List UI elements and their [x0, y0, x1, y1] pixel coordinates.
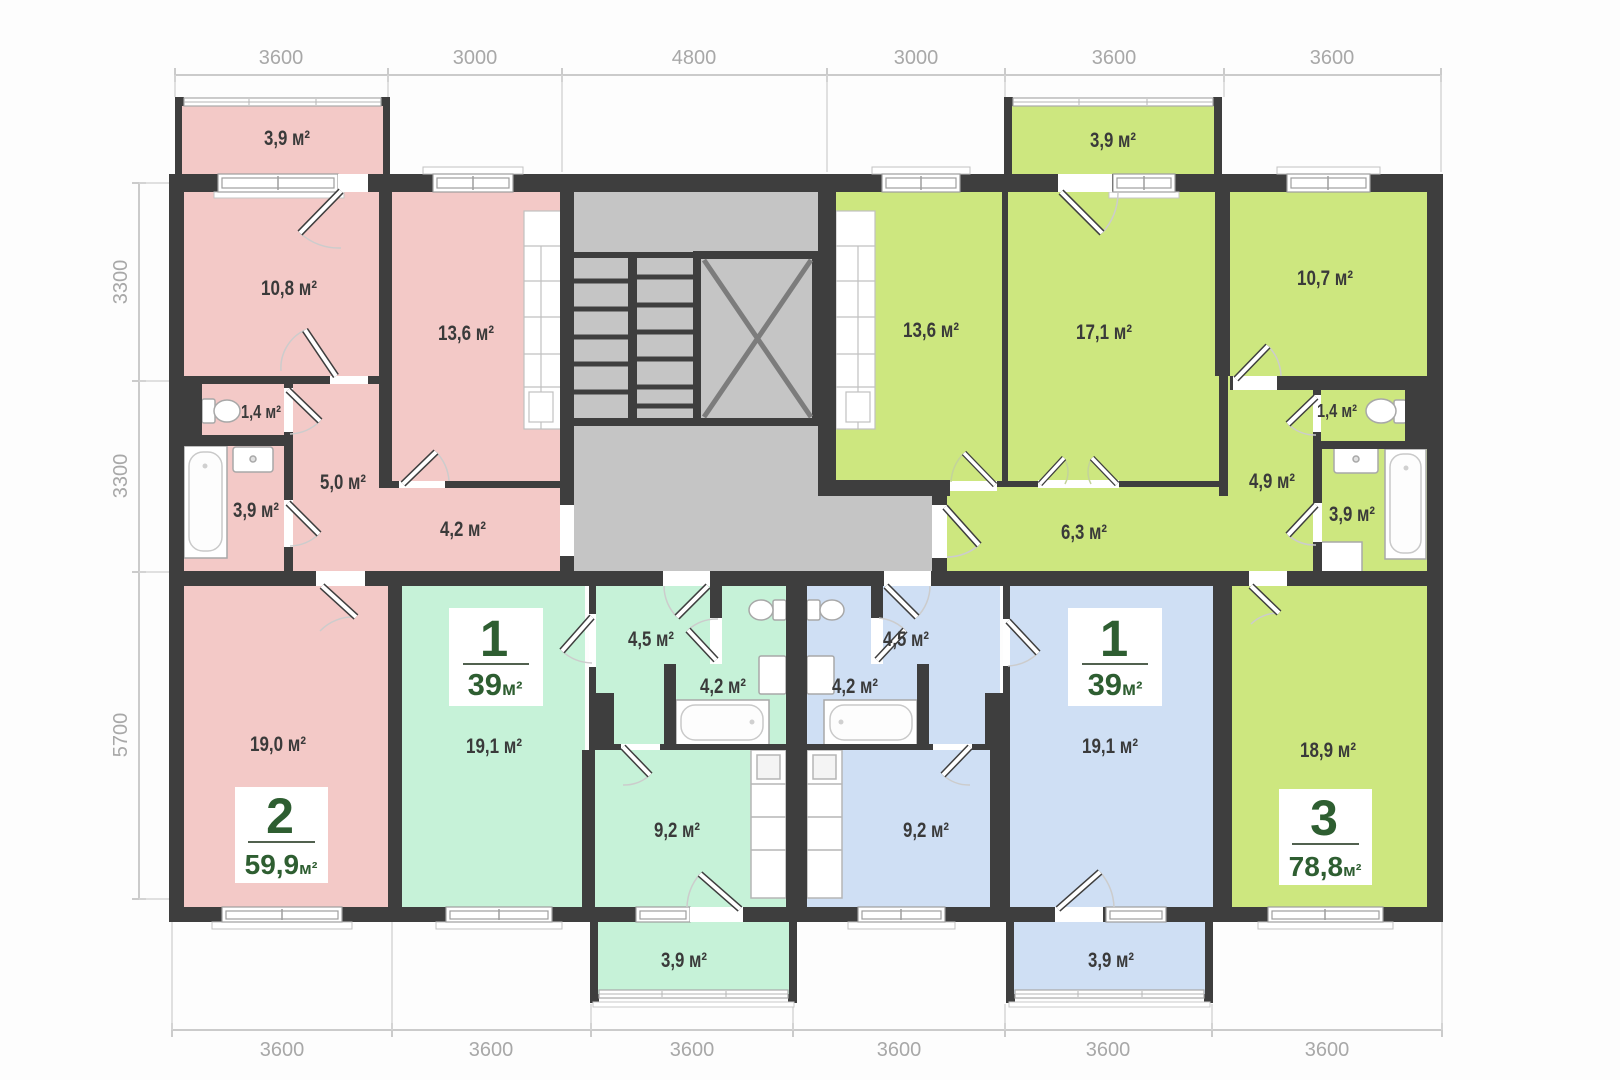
svg-text:13,6 м²: 13,6 м²: [438, 322, 494, 345]
svg-text:1: 1: [1100, 610, 1128, 667]
svg-text:3,9 м²: 3,9 м²: [264, 127, 310, 150]
svg-text:3300: 3300: [110, 260, 132, 305]
svg-text:13,6 м²: 13,6 м²: [903, 319, 959, 342]
svg-text:3,9 м²: 3,9 м²: [1088, 949, 1134, 972]
svg-text:3600: 3600: [877, 1039, 922, 1061]
svg-text:19,1 м²: 19,1 м²: [466, 735, 522, 758]
svg-text:9,2 м²: 9,2 м²: [903, 819, 949, 842]
svg-text:6,3 м²: 6,3 м²: [1061, 521, 1107, 544]
svg-text:19,0 м²: 19,0 м²: [250, 733, 306, 756]
svg-text:3000: 3000: [894, 47, 939, 69]
svg-text:3600: 3600: [1305, 1039, 1350, 1061]
svg-text:3600: 3600: [259, 47, 304, 69]
svg-text:5,0 м²: 5,0 м²: [320, 471, 366, 494]
svg-text:3,9 м²: 3,9 м²: [661, 949, 707, 972]
svg-text:4,2 м²: 4,2 м²: [700, 675, 746, 698]
svg-text:4,9 м²: 4,9 м²: [1249, 470, 1295, 493]
svg-text:4,5 м²: 4,5 м²: [628, 628, 674, 651]
svg-text:1,4 м²: 1,4 м²: [241, 402, 281, 422]
svg-text:1: 1: [480, 610, 508, 667]
svg-text:18,9 м²: 18,9 м²: [1300, 739, 1356, 762]
svg-text:9,2 м²: 9,2 м²: [654, 819, 700, 842]
svg-text:4,5 м²: 4,5 м²: [883, 628, 929, 651]
svg-text:3600: 3600: [1086, 1039, 1131, 1061]
svg-text:3,9 м²: 3,9 м²: [1090, 129, 1136, 152]
svg-text:1,4 м²: 1,4 м²: [1317, 401, 1357, 421]
svg-text:4,2 м²: 4,2 м²: [832, 675, 878, 698]
svg-text:3600: 3600: [670, 1039, 715, 1061]
svg-text:4,2 м²: 4,2 м²: [440, 518, 486, 541]
svg-text:3300: 3300: [110, 454, 132, 499]
svg-text:3,9 м²: 3,9 м²: [233, 499, 279, 522]
svg-text:3: 3: [1310, 790, 1338, 846]
svg-text:10,7 м²: 10,7 м²: [1297, 267, 1353, 290]
svg-text:3600: 3600: [1310, 47, 1355, 69]
svg-text:3600: 3600: [260, 1039, 305, 1061]
svg-text:3600: 3600: [469, 1039, 514, 1061]
svg-text:2: 2: [266, 788, 294, 844]
svg-text:10,8 м²: 10,8 м²: [261, 277, 317, 300]
svg-text:19,1 м²: 19,1 м²: [1082, 735, 1138, 758]
svg-text:5700: 5700: [110, 713, 132, 758]
svg-text:3,9 м²: 3,9 м²: [1329, 503, 1375, 526]
svg-text:4800: 4800: [672, 47, 717, 69]
svg-text:17,1 м²: 17,1 м²: [1076, 321, 1132, 344]
svg-text:3000: 3000: [453, 47, 498, 69]
svg-text:3600: 3600: [1092, 47, 1137, 69]
